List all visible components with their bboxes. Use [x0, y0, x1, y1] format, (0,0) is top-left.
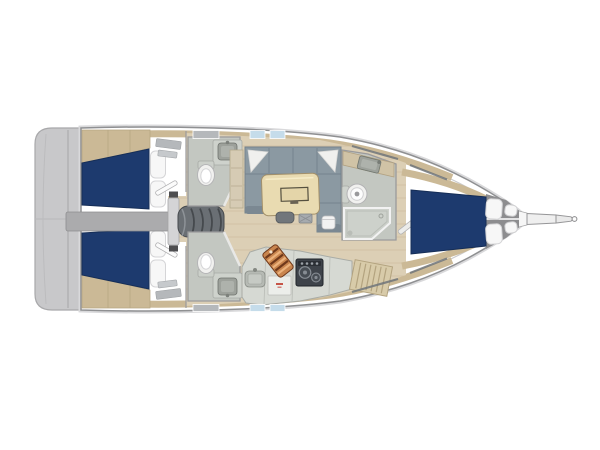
pillow: [485, 223, 502, 244]
basin-bowl: [221, 281, 234, 292]
toilet-bowl: [355, 192, 360, 197]
salon-cabinet: [230, 150, 243, 208]
stool: [276, 212, 294, 223]
floor-plan-canvas: [0, 0, 600, 450]
toilet-seat: [201, 169, 211, 183]
chair: [322, 216, 335, 229]
salon-table: [261, 173, 319, 216]
stove-icon: [296, 259, 323, 286]
bow-cushion: [504, 221, 517, 234]
shower-head-icon: [348, 231, 353, 236]
skylight-hatch-icon: [270, 305, 285, 312]
sprit-body: [527, 214, 556, 225]
skylight-hatch-icon: [250, 305, 265, 312]
toilet-seat: [201, 255, 211, 269]
vent-hatch-icon: [193, 131, 219, 139]
skylight-hatch-icon: [250, 131, 265, 139]
table-leaf-detail: [281, 187, 308, 201]
yacht-layout-diagram: [0, 0, 600, 450]
vent-hatch-icon: [193, 305, 219, 312]
galley-locker: [268, 276, 291, 295]
faucet-icon: [226, 294, 230, 298]
faucet-icon: [253, 268, 257, 272]
red-label: [278, 287, 282, 289]
bow-fitting: [519, 211, 527, 227]
collar-foot: [169, 192, 178, 198]
skylight-hatch-icon: [270, 131, 285, 139]
collar-foot: [169, 246, 178, 252]
bow-cushion: [504, 204, 517, 217]
red-label: [276, 283, 283, 285]
sink-bowl: [248, 274, 262, 284]
pillow: [485, 198, 502, 219]
v-berth-mattress: [411, 190, 486, 254]
table-latch: [290, 200, 298, 204]
faucet-icon: [226, 141, 230, 145]
bowsprit: [519, 211, 577, 227]
mast-collar: [168, 198, 179, 245]
engine-beam: [66, 212, 170, 231]
sprit-tip: [556, 215, 573, 223]
anchor-roller-icon: [572, 217, 577, 222]
